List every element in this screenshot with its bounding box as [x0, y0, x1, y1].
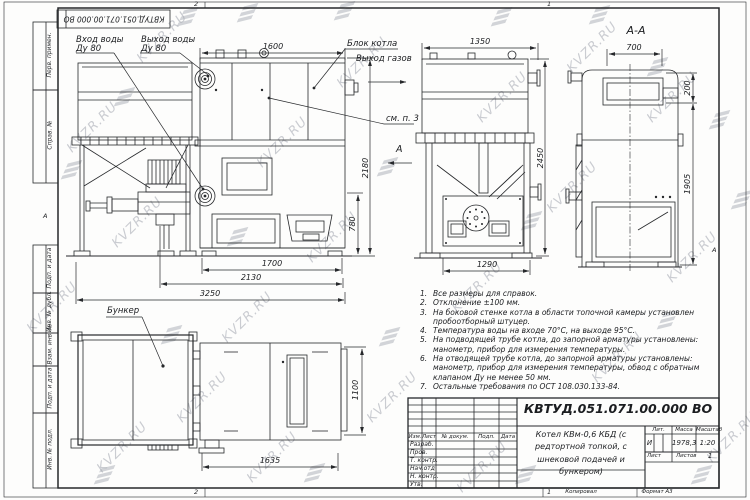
drawing-canvas — [0, 0, 750, 500]
front-view — [66, 49, 358, 257]
zone-mark-right-a: А — [712, 247, 716, 254]
note-item: 3.На боковой стенке котла в области топо… — [420, 308, 722, 327]
title-block-listov-value: 1 — [704, 453, 716, 460]
dim-700: 700 — [604, 44, 664, 52]
title-block-doc-number: КВТУД.051.071.00.000 ВО — [517, 403, 719, 416]
margin-stamp-sprav-no: Справ. № — [47, 91, 53, 180]
side-view — [414, 51, 542, 258]
note-number: 6. — [420, 354, 433, 382]
margin-stamp-inv-podl: Инв. № подл. — [47, 412, 53, 487]
title-block-row-prov: Пров. — [410, 450, 427, 456]
zone-mark-top-2: 2 — [194, 1, 198, 8]
note-text: На подводящей трубе котла, до запорной а… — [433, 335, 715, 354]
dim-3250: 3250 — [180, 290, 240, 298]
note-item: 1.Все размеры для справок. — [420, 289, 722, 298]
title-block-col-data: Дата — [499, 435, 517, 441]
title-block-row-tkontr: Т. контр. — [410, 458, 438, 464]
sheet-frame — [4, 2, 746, 497]
note-text: Температура воды на входе 70°С, на выход… — [433, 326, 715, 335]
gas-outlet-label: Выход газов — [356, 55, 412, 64]
note-item: 2.Отклонение ±100 мм. — [420, 298, 722, 307]
zone-mark-bottom-2: 2 — [194, 489, 198, 496]
margin-stamp-podp-data-1: Подп. и дата — [47, 244, 53, 292]
title-block-listov-label: Листов — [676, 454, 702, 460]
top-view — [71, 332, 347, 453]
title-block-col-docum: № докум. — [436, 435, 474, 441]
section-arrow-letter: А — [396, 145, 403, 155]
note-number: 3. — [420, 308, 433, 327]
hopper-label: Бункер — [107, 307, 139, 316]
title-block-lit-value: И — [645, 440, 654, 447]
note-number: 5. — [420, 335, 433, 354]
note-item: 6.На отводящей трубе котла, до запорной … — [420, 354, 722, 382]
see-note-label: см. п. 3 — [386, 115, 419, 124]
title-block-massa-label: Масса — [672, 428, 696, 434]
title-block-format: Формат А3 — [627, 490, 687, 496]
dim-200: 200 — [684, 68, 692, 108]
title-block-row-razrab: Разраб. — [410, 442, 434, 448]
title-block-col-list: Лист — [422, 435, 436, 441]
dim-2130: 2130 — [221, 274, 281, 282]
title-block-massa-value: 1978,3 — [672, 440, 696, 447]
dim-1290: 1290 — [457, 261, 517, 269]
title-block-kopiroval: Копировал — [551, 490, 611, 496]
title-block-col-podp: Подп. — [474, 435, 499, 441]
note-item: 7.Остальные требования по ОСТ 108.030.13… — [420, 382, 722, 391]
title-block-col-izm: Изм. — [408, 435, 422, 441]
dim-1905: 1905 — [684, 164, 692, 204]
margin-stamp-vzam-inv: Взам. инв. № — [47, 332, 53, 365]
note-item: 4.Температура воды на входе 70°С, на вых… — [420, 326, 722, 335]
dim-1635: 1635 — [240, 457, 300, 465]
dim-780: 780 — [349, 204, 357, 244]
boiler-block-label: Блок котла — [347, 40, 397, 49]
water-outlet-dn-label: Ду 80 — [141, 45, 166, 54]
water-inlet-dn-label: Ду 80 — [76, 45, 101, 54]
note-number: 1. — [420, 289, 433, 298]
dim-1700: 1700 — [242, 260, 302, 268]
drawing-sheet: KVZR.RU KVZR.RU KVZR.RU KVZR.RU KVZR.RU … — [0, 0, 750, 500]
note-text: На отводящей трубе котла, до запорной ар… — [433, 354, 715, 382]
notes-list: 1.Все размеры для справок. 2.Отклонение … — [420, 289, 722, 391]
note-number: 2. — [420, 298, 433, 307]
title-block-masshtab-label: Масштаб — [696, 428, 719, 434]
margin-stamp-podp-data-2: Подп. и дата — [47, 365, 53, 412]
title-block-masshtab-value: 1:20 — [696, 440, 719, 447]
dim-2180: 2180 — [362, 148, 370, 188]
note-number: 7. — [420, 382, 433, 391]
note-number: 4. — [420, 326, 433, 335]
title-block-product-name: Котел КВм-0,6 КБД (с редтортной топкой, … — [519, 429, 643, 479]
note-text: На боковой стенке котла в области топочн… — [433, 308, 715, 327]
dim-1350: 1350 — [450, 38, 510, 46]
dim-1600: 1600 — [243, 43, 303, 51]
dim-1100: 1100 — [352, 370, 360, 410]
margin-stamp-perv-primen: Перв. примен. — [47, 21, 53, 89]
corner-stamp-doc-number: КВТУД.051.071.00.000 ВО — [59, 15, 169, 23]
note-text: Все размеры для справок. — [433, 289, 715, 298]
note-text: Отклонение ±100 мм. — [433, 298, 715, 307]
title-block-row-nkontr: Н. контр. — [410, 474, 439, 480]
title-block-row-nachotd: Нач.отд — [410, 466, 435, 472]
zone-mark-left-a: А — [43, 213, 47, 220]
title-block-lit-label: Лит. — [645, 428, 672, 434]
note-text: Остальные требования по ОСТ 108.030.133-… — [433, 382, 715, 391]
section-title: А-А — [612, 25, 660, 36]
dim-2450: 2450 — [537, 138, 545, 178]
zone-mark-top-1: 1 — [547, 1, 551, 8]
note-item: 5.На подводящей трубе котла, до запорной… — [420, 335, 722, 354]
section-view — [566, 64, 683, 272]
title-block-list-label: Лист — [647, 454, 667, 460]
title-block-row-utv: Утв. — [410, 482, 423, 488]
